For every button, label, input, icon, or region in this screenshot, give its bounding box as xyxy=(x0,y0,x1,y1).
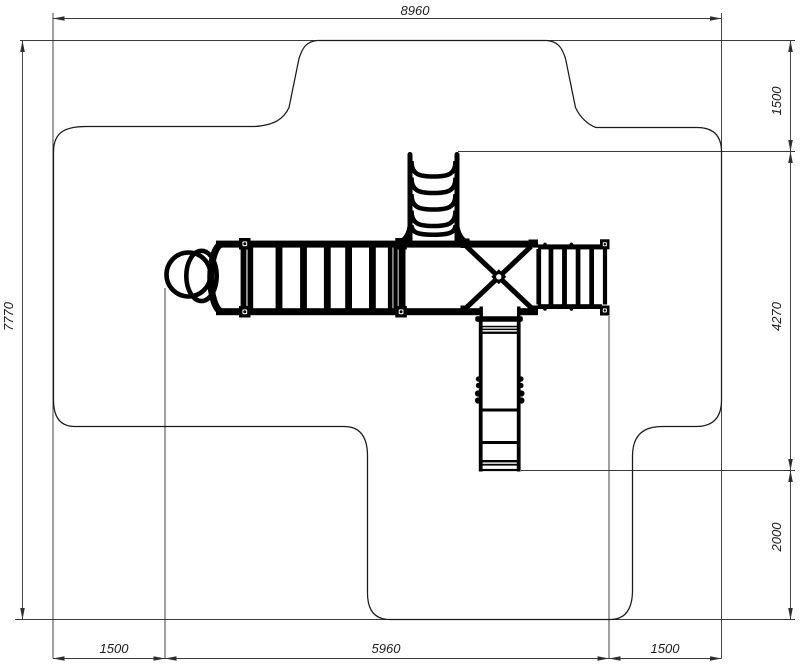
svg-text:1500: 1500 xyxy=(100,641,130,656)
svg-text:2000: 2000 xyxy=(769,522,784,553)
svg-text:1500: 1500 xyxy=(769,86,784,116)
svg-text:4270: 4270 xyxy=(769,301,784,331)
svg-text:5960: 5960 xyxy=(372,641,402,656)
svg-text:1500: 1500 xyxy=(651,641,681,656)
svg-text:8960: 8960 xyxy=(401,3,431,18)
svg-text:7770: 7770 xyxy=(1,301,16,331)
